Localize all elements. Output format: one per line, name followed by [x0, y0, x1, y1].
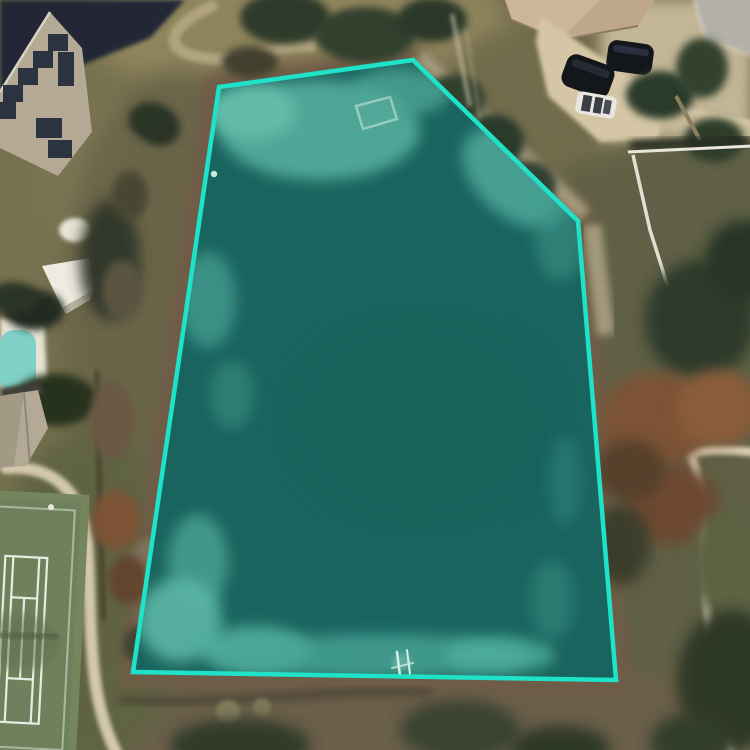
tennis-court [0, 489, 90, 750]
palm-tree [676, 38, 728, 98]
aerial-scene [0, 0, 750, 750]
map-canvas [0, 0, 750, 750]
dark-suv-2 [605, 39, 655, 76]
